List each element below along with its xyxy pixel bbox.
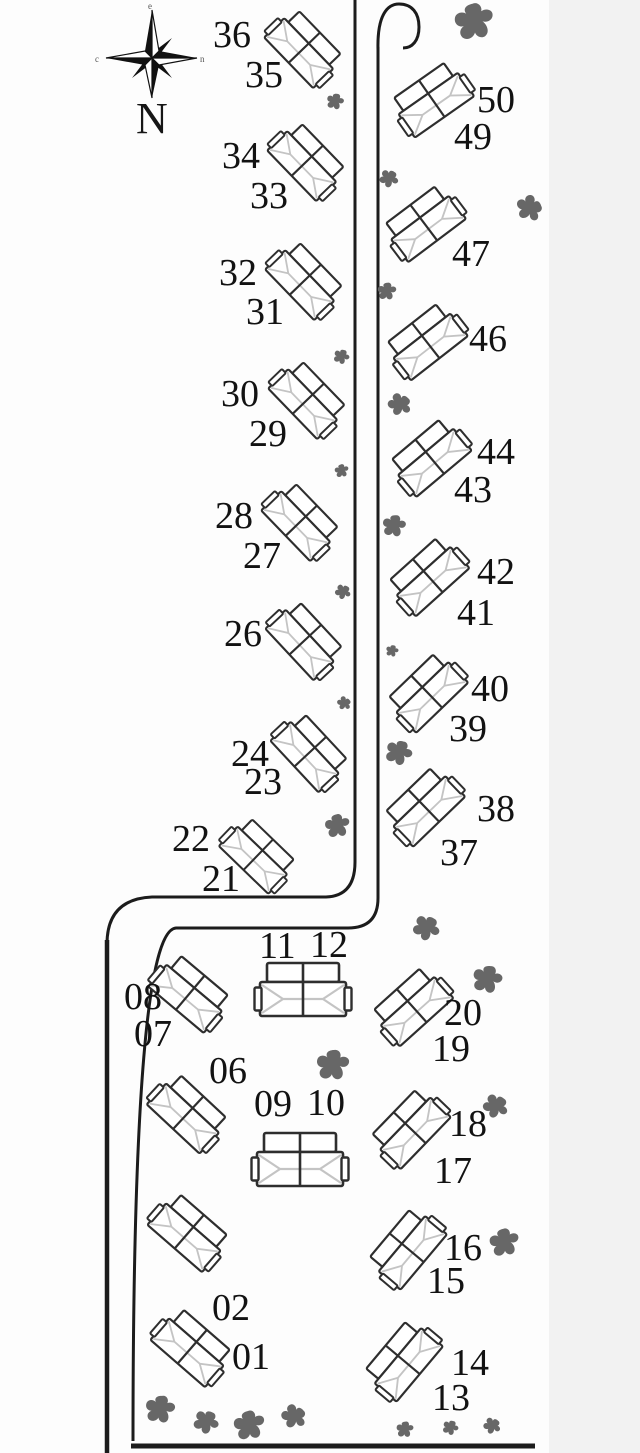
unit-label-08: 08 — [124, 976, 162, 1018]
unit-label-32: 32 — [219, 252, 257, 294]
scan-margin-strip — [549, 0, 640, 1453]
unit-label-27: 27 — [243, 535, 281, 577]
building-11-12 — [255, 963, 352, 1016]
unit-label-43: 43 — [454, 469, 492, 511]
unit-label-50: 50 — [477, 79, 515, 121]
compass-tip-left: c — [95, 54, 99, 64]
unit-label-46: 46 — [469, 318, 507, 360]
unit-label-37: 37 — [440, 832, 478, 874]
unit-label-15: 15 — [427, 1260, 465, 1302]
unit-label-36: 36 — [213, 14, 251, 56]
unit-label-44: 44 — [477, 431, 515, 473]
compass-tip-top: e — [148, 1, 152, 11]
unit-label-29: 29 — [249, 413, 287, 455]
unit-label-13: 13 — [432, 1377, 470, 1419]
unit-label-38: 38 — [477, 788, 515, 830]
unit-label-07: 07 — [134, 1013, 172, 1055]
unit-label-41: 41 — [457, 592, 495, 634]
site-map: 3635343332313029282726242322215049474644… — [0, 0, 640, 1453]
unit-label-33: 33 — [250, 175, 288, 217]
unit-label-02: 02 — [212, 1287, 250, 1329]
unit-label-19: 19 — [432, 1028, 470, 1070]
unit-label-21: 21 — [202, 858, 240, 900]
compass-tip-right: n — [200, 54, 205, 64]
building-09-10 — [252, 1133, 349, 1186]
unit-label-28: 28 — [215, 495, 253, 537]
unit-label-26: 26 — [224, 613, 262, 655]
unit-label-12: 12 — [310, 924, 348, 966]
unit-label-42: 42 — [477, 551, 515, 593]
unit-label-11: 11 — [259, 925, 296, 967]
site-map-page: 3635343332313029282726242322215049474644… — [0, 0, 640, 1453]
unit-label-23: 23 — [244, 761, 282, 803]
unit-label-09: 09 — [254, 1083, 292, 1125]
unit-label-22: 22 — [172, 818, 210, 860]
unit-label-49: 49 — [454, 116, 492, 158]
unit-label-06: 06 — [209, 1050, 247, 1092]
unit-label-30: 30 — [221, 373, 259, 415]
unit-label-40: 40 — [471, 668, 509, 710]
unit-label-17: 17 — [434, 1150, 472, 1192]
map-background — [0, 0, 640, 1453]
unit-label-10: 10 — [307, 1082, 345, 1124]
unit-label-31: 31 — [246, 291, 284, 333]
unit-label-39: 39 — [449, 708, 487, 750]
unit-label-01: 01 — [232, 1336, 270, 1378]
unit-label-18: 18 — [449, 1103, 487, 1145]
unit-label-34: 34 — [222, 135, 260, 177]
unit-label-47: 47 — [452, 233, 490, 275]
compass-north-label: N — [136, 94, 168, 143]
unit-label-35: 35 — [245, 54, 283, 96]
